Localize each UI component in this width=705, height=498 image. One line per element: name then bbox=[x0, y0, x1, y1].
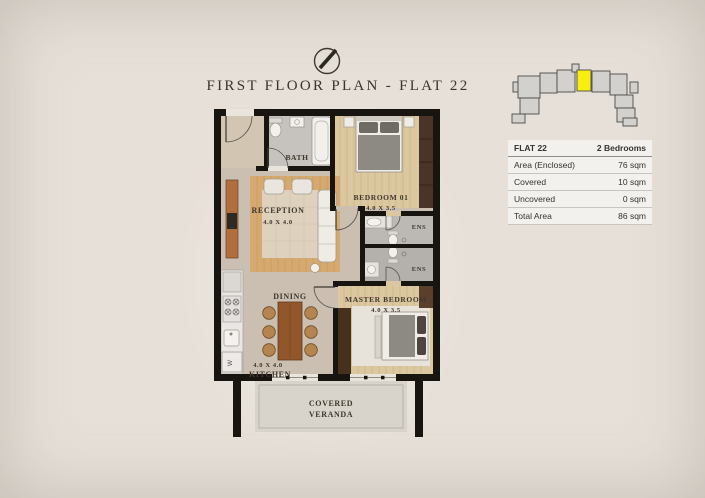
dining-set bbox=[263, 302, 318, 360]
label-kitchen: KITCHEN bbox=[249, 370, 291, 379]
row-value: 76 sqm bbox=[618, 160, 646, 170]
table-row: Total Area 86 sqm bbox=[508, 208, 652, 225]
label-master: MASTER BEDROOM bbox=[345, 295, 427, 304]
table-row: Covered 10 sqm bbox=[508, 174, 652, 191]
table-row: Uncovered 0 sqm bbox=[508, 191, 652, 208]
washer-label: W bbox=[227, 359, 234, 366]
row-label: Uncovered bbox=[514, 194, 555, 204]
row-label: Area (Enclosed) bbox=[514, 160, 575, 170]
dims-master: 4.0 X 3.5 bbox=[371, 307, 401, 314]
north-arrow-icon bbox=[311, 44, 343, 76]
row-value: 10 sqm bbox=[618, 177, 646, 187]
row-value: 0 sqm bbox=[623, 194, 646, 204]
page-title: FIRST FLOOR PLAN - FLAT 22 bbox=[170, 78, 506, 95]
flat-number: FLAT 22 bbox=[514, 143, 547, 153]
dims-bedroom01: 4.0 X 3.5 bbox=[366, 205, 396, 212]
bath-sink bbox=[290, 117, 304, 127]
veranda-column-left bbox=[233, 381, 241, 437]
table-header-row: FLAT 22 2 Bedrooms bbox=[508, 140, 652, 157]
veranda-column-right bbox=[415, 381, 423, 437]
toilet bbox=[270, 123, 281, 137]
dims-kitchen: 4.0 X 4.0 bbox=[253, 362, 283, 369]
veranda-label-line1: COVERED bbox=[309, 399, 353, 408]
label-reception: RECEPTION bbox=[252, 206, 305, 215]
bed-master bbox=[375, 312, 428, 360]
table-row: Area (Enclosed) 76 sqm bbox=[508, 157, 652, 174]
tv bbox=[227, 213, 237, 229]
label-dining: DINING bbox=[273, 292, 306, 301]
sink bbox=[224, 330, 239, 346]
kitchen-counter: W bbox=[221, 270, 243, 374]
key-plan-blocks bbox=[512, 64, 638, 126]
armchair bbox=[292, 179, 312, 194]
label-ens-bottom: ENS bbox=[412, 266, 426, 273]
side-table bbox=[311, 264, 320, 273]
key-plan bbox=[505, 55, 645, 133]
armchair bbox=[264, 179, 284, 194]
flat-info-table: FLAT 22 2 Bedrooms Area (Enclosed) 76 sq… bbox=[508, 140, 652, 225]
fridge bbox=[223, 272, 241, 292]
row-value: 86 sqm bbox=[618, 211, 646, 221]
label-bedroom01: BEDROOM 01 bbox=[354, 193, 409, 202]
dims-reception: 4.0 X 4.0 bbox=[263, 219, 293, 226]
veranda-label-line2: VERANDA bbox=[309, 410, 353, 419]
key-plan-highlighted-unit bbox=[577, 70, 591, 91]
floor-plan-drawing: COVERED VERANDA bbox=[200, 100, 455, 450]
row-label: Covered bbox=[514, 177, 546, 187]
label-ens-top: ENS bbox=[412, 224, 426, 231]
label-bath: BATH bbox=[285, 153, 308, 162]
floor-plan-page: FIRST FLOOR PLAN - FLAT 22 FLAT 22 2 Bed… bbox=[0, 0, 705, 498]
bedroom-count: 2 Bedrooms bbox=[597, 143, 646, 153]
row-label: Total Area bbox=[514, 211, 552, 221]
covered-veranda: COVERED VERANDA bbox=[233, 381, 423, 437]
